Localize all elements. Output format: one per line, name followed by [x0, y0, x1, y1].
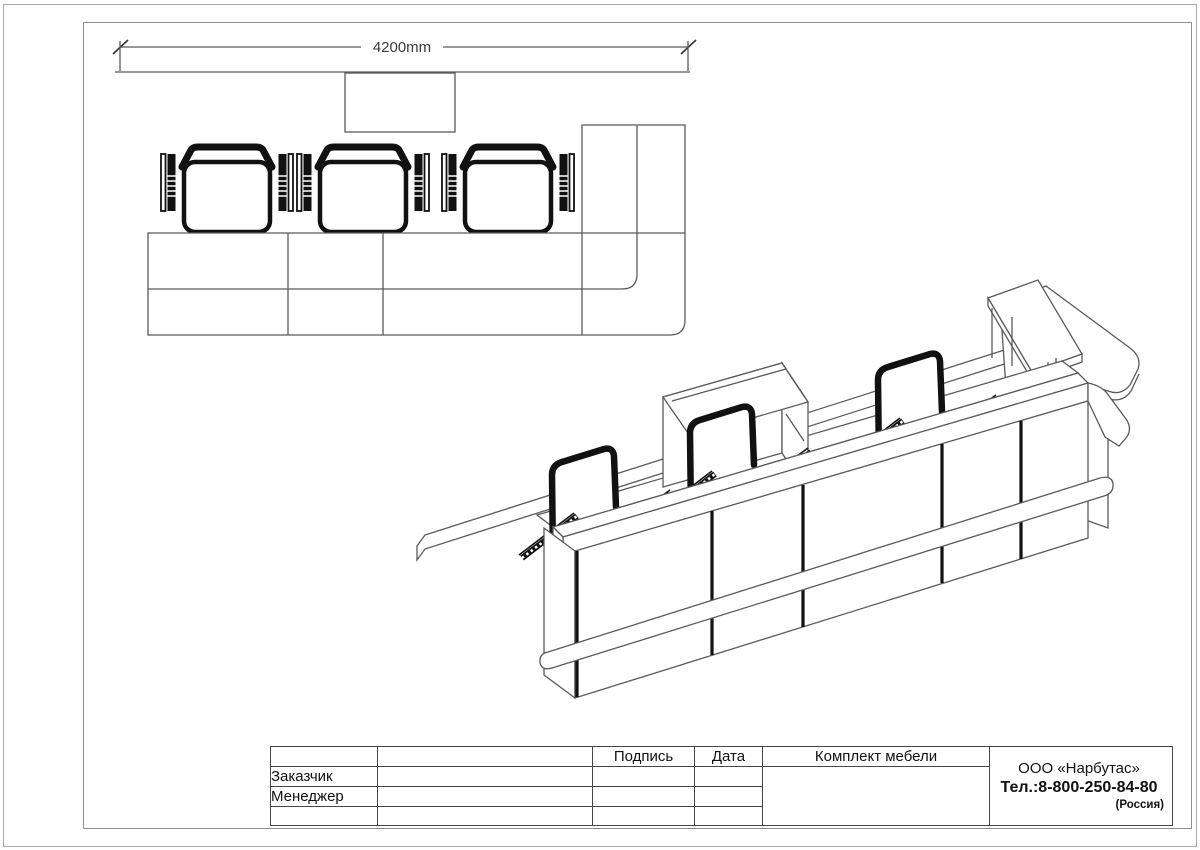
company-info-cell: ООО «Нарбутас» Тел.:8-800-250-84-80 (Рос… — [990, 747, 1173, 826]
customer-signature-cell — [593, 767, 695, 787]
empty-row-cell — [378, 807, 593, 826]
furniture-drawing: 4200mm — [0, 0, 1200, 850]
company-country: (Россия) — [994, 798, 1164, 813]
company-phone: Тел.:8-800-250-84-80 — [994, 778, 1164, 798]
manager-signature-cell — [593, 787, 695, 807]
manager-value-cell — [378, 787, 593, 807]
empty-row-cell — [695, 807, 763, 826]
title-block: Подпись Дата Комплект мебели ООО «Нарбут… — [270, 746, 1173, 826]
customer-date-cell — [695, 767, 763, 787]
title-block-cell-empty — [271, 747, 378, 767]
empty-row-cell — [593, 807, 695, 826]
title-block-cell-empty — [378, 747, 593, 767]
isometric-view — [417, 280, 1139, 698]
plan-chair-1 — [161, 147, 293, 236]
manager-date-cell — [695, 787, 763, 807]
empty-row-cell — [271, 807, 378, 826]
date-header: Дата — [695, 747, 763, 767]
drawing-sheet: 4200mm — [0, 0, 1200, 850]
furniture-set-cell — [763, 767, 990, 826]
customer-label: Заказчик — [271, 767, 378, 787]
furniture-set-header: Комплект мебели — [763, 747, 990, 767]
manager-label: Менеджер — [271, 787, 378, 807]
wall-cabinet-plan — [345, 73, 455, 132]
plan-chair-2 — [297, 147, 429, 236]
plan-view: 4200mm — [113, 39, 696, 335]
signature-header: Подпись — [593, 747, 695, 767]
customer-value-cell — [378, 767, 593, 787]
company-name: ООО «Нарбутас» — [994, 759, 1164, 778]
plan-chair-3 — [442, 147, 574, 236]
dimension-label: 4200mm — [373, 39, 431, 56]
dimension-4200: 4200mm — [113, 39, 696, 71]
